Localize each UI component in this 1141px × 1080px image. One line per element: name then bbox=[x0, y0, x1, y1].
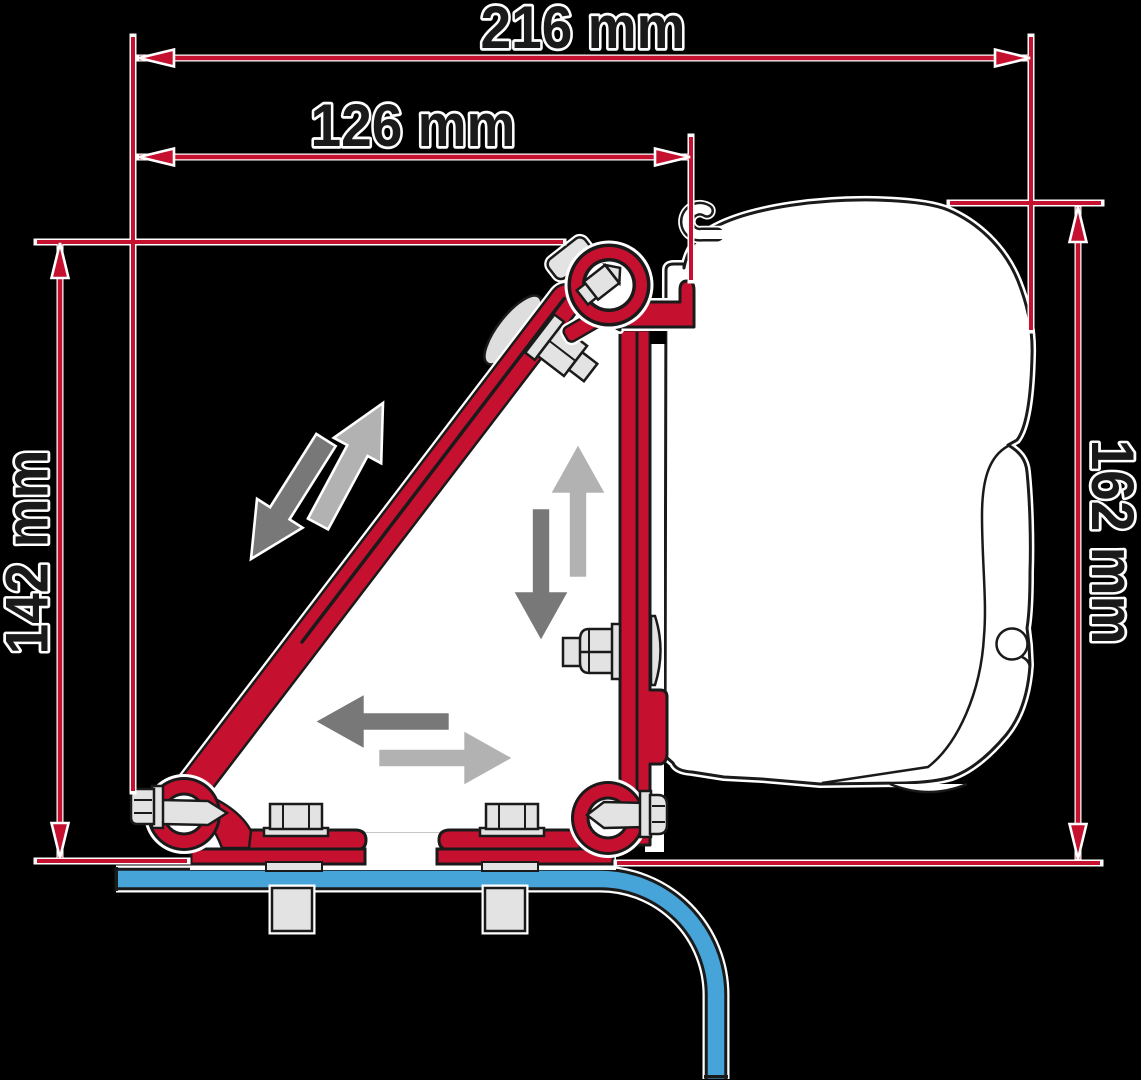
svg-text:216 mm: 216 mm bbox=[481, 0, 686, 61]
svg-text:142 mm: 142 mm bbox=[0, 450, 61, 655]
svg-text:162 mm: 162 mm bbox=[1079, 440, 1141, 645]
svg-text:126 mm: 126 mm bbox=[311, 92, 516, 159]
